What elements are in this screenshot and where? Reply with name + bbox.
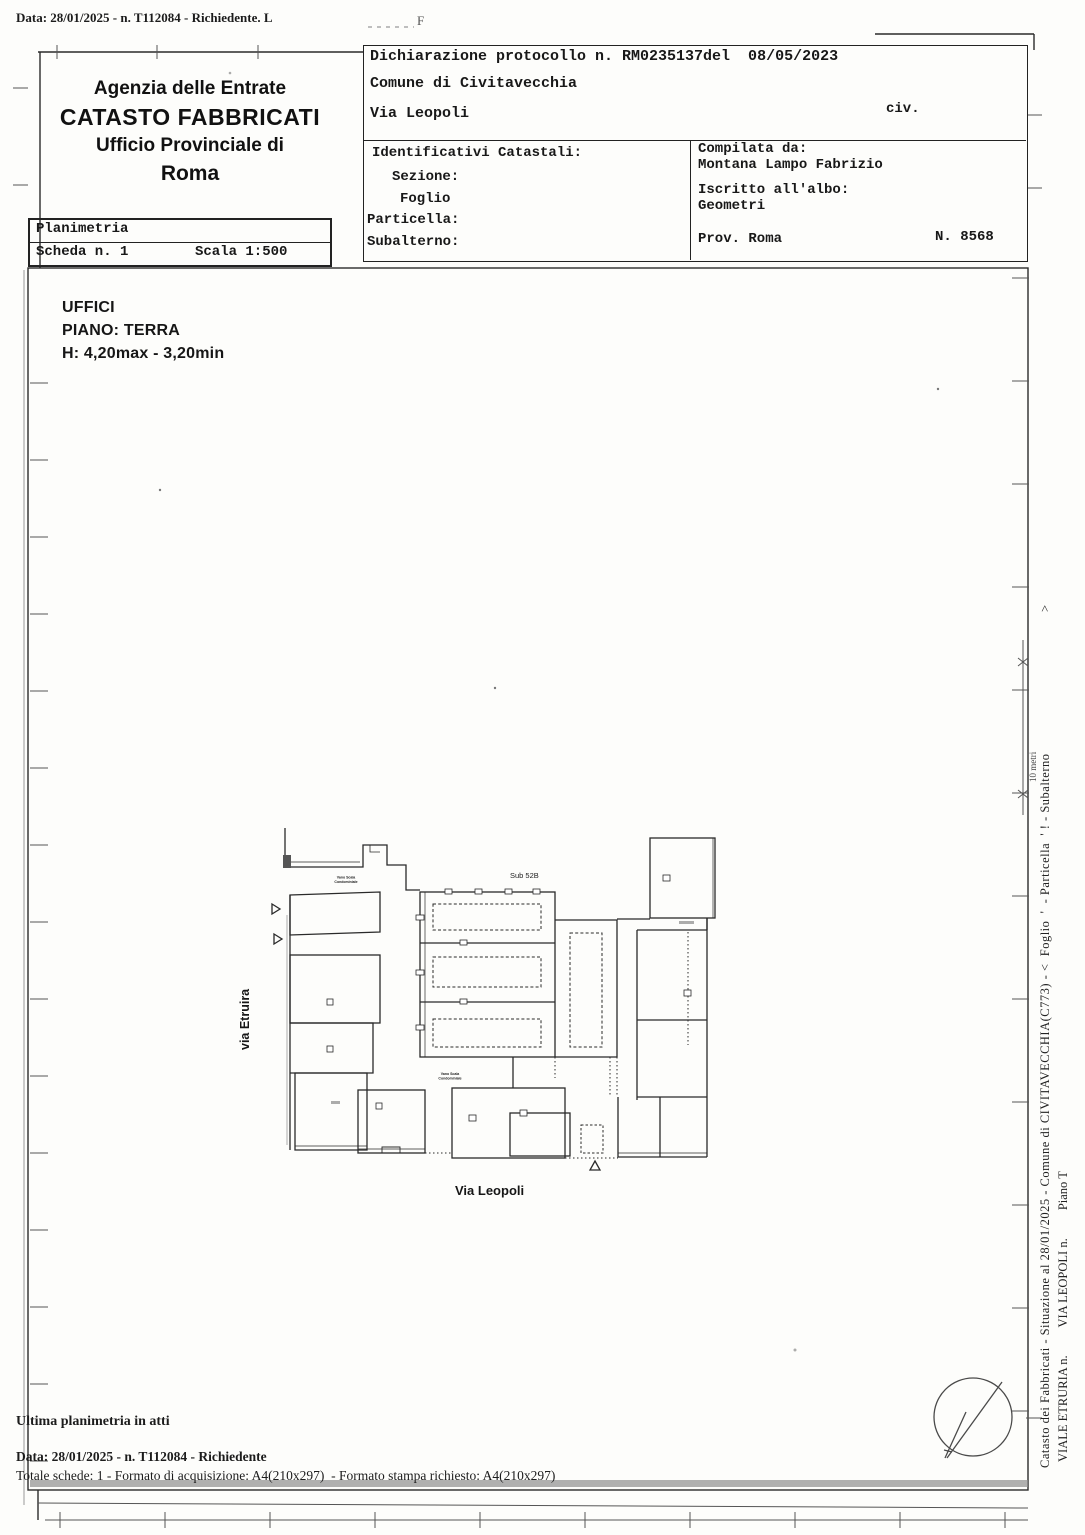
planimetria-label: Planimetria [36,221,128,237]
protocol-line: Dichiarazione protocollo n. RM0235137del… [370,48,838,65]
round-stamp [934,1378,1012,1458]
agency-line1: Agenzia delle Entrate [40,78,340,100]
compilata-name: Montana Lampo Fabrizio [698,157,883,173]
agency-line3: Ufficio Provinciale di [40,135,340,157]
stair-label-top-2: Condominiale [334,880,357,884]
sub-label: Sub 52B [510,871,539,880]
scale-bar-label: 10 metri [1028,752,1038,782]
civ-label: civ. [886,101,920,117]
street-bottom-label: Via Leopoli [455,1183,524,1198]
agency-header: Agenzia delle Entrate CATASTO FABBRICATI… [40,78,340,186]
scheda-row: Scheda n. 1 Scala 1:500 [30,242,330,265]
scale-bar [1018,640,1028,815]
agency-line2: CATASTO FABBRICATI [40,104,340,131]
footer-data-line: Data: 28/01/2025 - n. T112084 - Richiede… [16,1449,267,1465]
declaration-hdivider [363,140,1026,141]
sezione-label: Sezione: [392,169,459,185]
prov-label: Prov. Roma [698,231,782,247]
agency-line4: Roma [40,162,340,186]
compilata-label: Compilata da: [698,141,807,157]
albo-value: Geometri [698,198,765,214]
comune-line: Comune di Civitavecchia [370,75,577,92]
foglio-label: Foglio [400,191,450,207]
planimetria-box: Planimetria Scheda n. 1 Scala 1:500 [28,218,332,267]
street-line: Via Leopoli [370,105,469,122]
plan-arrow-markers [272,904,600,1170]
destination-block: UFFICI PIANO: TERRA H: 4,20max - 3,20min [62,296,224,365]
scala-label: Scala 1:500 [195,244,287,260]
stair-label-mid-1: Vano Scala [441,1072,460,1076]
albo-number: N. 8568 [935,229,994,245]
dest-line1: UFFICI [62,296,224,319]
catastali-title: Identificativi Catastali: [372,145,582,161]
scheda-label: Scheda n. 1 [36,244,128,260]
dest-line3: H: 4,20max - 3,20min [62,342,224,365]
plan-right-center-room [555,919,650,1057]
footer-totale-line: Totale schede: 1 - Formato di acquisizio… [16,1468,555,1484]
albo-label: Iscritto all'albo: [698,182,849,198]
plan-central-block [416,889,555,1057]
stair-label-mid-2: Condominiale [438,1077,461,1081]
footer-ultima-line: Ultima planimetria in atti [16,1414,170,1430]
sidebar-address-line: VIALE ETRURIA n. VIA LEOPOLI n. Piano T [1056,1171,1071,1462]
sidebar-info-line-end: > [1038,605,1053,612]
floor-plan: Sub 52B Vano Scala Condominiale Vano Sca… [270,820,740,1180]
cadastral-plan-page: Data: 28/01/2025 - n. T112084 - Richiede… [0,0,1085,1535]
faint-mark: F [417,13,424,29]
plan-left-block [287,892,425,1153]
declaration-vdivider [690,140,691,260]
plan-topright-block [650,838,715,930]
top-margin-request-line: Data: 28/01/2025 - n. T112084 - Richiede… [16,10,273,26]
subalterno-label: Subalterno: [367,234,459,250]
particella-label: Particella: [367,212,459,228]
dest-line2: PIANO: TERRA [62,319,224,342]
plan-right-column [618,918,707,1157]
stair-label-top-1: Vano Scala [337,876,356,880]
sidebar-info-line: Catasto dei Fabbricati - Situazione al 2… [1038,754,1053,1469]
street-left-label: via Etruira [238,989,252,1050]
